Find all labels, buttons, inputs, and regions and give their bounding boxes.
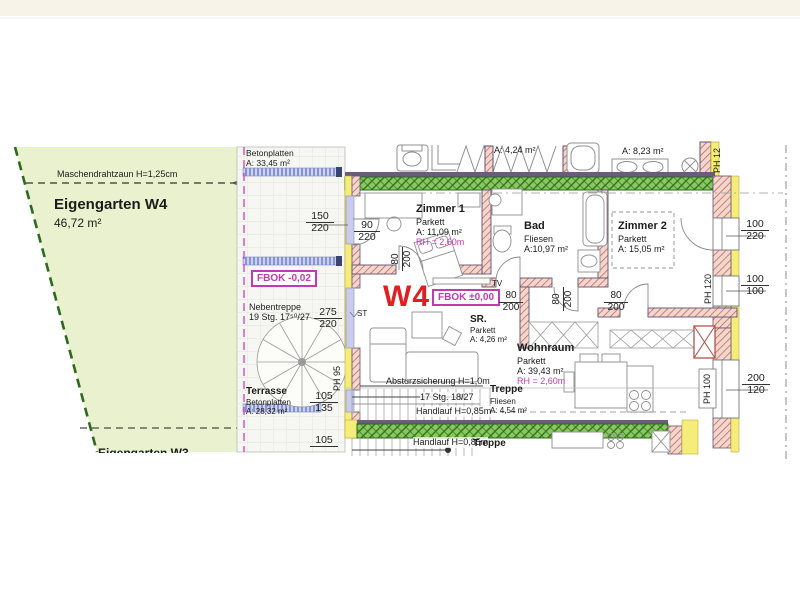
ph120-label: PH 120 (703, 274, 714, 304)
dim-door-zimmer1-west: 90 220 (354, 220, 380, 244)
st-label: ST (357, 309, 367, 318)
room-bad-name: Bad (524, 220, 545, 233)
terrace-area: A: 28,32 m² (246, 407, 287, 416)
room-wohnraum-name: Wohnraum (517, 342, 574, 355)
room-sr-area: A: 4,26 m² (470, 335, 507, 344)
floor-plan-page: Maschendrahtzaun H=1,25cm Eigengarten W4… (0, 0, 800, 600)
room-treppe-name: Treppe (490, 384, 523, 396)
dim-terrace-step-lower: 105 (310, 435, 338, 447)
dim-spiral: 275 220 (314, 307, 342, 331)
garden-neighbor-partial: Eigengarten W3 (98, 446, 189, 453)
room-zimmer1-height: RH = 2,60m (416, 237, 464, 248)
dim-terrace-step: 105 135 (310, 391, 338, 415)
terrace-name: Terrasse (246, 386, 287, 398)
ph100-label: PH 100 (702, 374, 713, 404)
room-sr-name: SR. (470, 314, 487, 326)
dim-window-east-3: 200 120 (742, 373, 770, 397)
room-zimmer2-name: Zimmer 2 (618, 220, 667, 233)
fbok-unit-badge: FBOK ±0,00 (432, 289, 500, 306)
room-zimmer1-name: Zimmer 1 (416, 203, 465, 216)
main-stair-steps: 17 Stg. 18/27 (420, 392, 474, 403)
fence-label: Maschendrahtzaun H=1,25cm (57, 169, 177, 180)
terrace-upper-material: Betonplatten (246, 148, 294, 158)
upper-bath-area: A: 8,23 m² (622, 146, 664, 157)
dim-window-west: 150 220 (306, 211, 334, 235)
room-wohnraum-height: RH = 2,60m (517, 376, 565, 387)
lower-stair-name: Treppe (473, 438, 506, 450)
dim-door-sr: 80 200 (552, 287, 575, 311)
room-zimmer2-area: A: 15,05 m² (618, 244, 665, 255)
room-treppe-area: A: 4,54 m² (490, 406, 527, 415)
garden-area: 46,72 m² (54, 216, 101, 230)
garden-name: Eigengarten W4 (54, 196, 167, 214)
main-stair-handrail: Handlauf H=0,85m (416, 406, 491, 417)
spiral-stair-steps: 19 Stg. 17⁵⁰/27 (249, 312, 310, 323)
unit-label: W4 (383, 279, 430, 314)
room-bad-area: A:10,97 m² (524, 244, 568, 255)
dim-window-east-2: 100 100 (741, 274, 769, 298)
terrace-upper-area: A: 33,45 m² (246, 158, 290, 168)
guard-rail-label: Absturzsicherung H=1,0m (386, 376, 490, 387)
tv-label: TV (492, 279, 502, 288)
upper-hall-area: A: 4,24 m² (494, 145, 536, 156)
ph95-label: PH 95 (332, 366, 343, 391)
fbok-terrace-badge: FBOK -0,02 (251, 270, 317, 287)
dim-door-bad: 80 200 (499, 291, 523, 314)
dim-door-zimmer1: 80 200 (391, 247, 414, 271)
dim-door-zimmer2: 80 200 (604, 291, 628, 314)
dim-window-east-1: 100 220 (741, 219, 769, 243)
ph12-label: PH 12 (712, 148, 723, 173)
